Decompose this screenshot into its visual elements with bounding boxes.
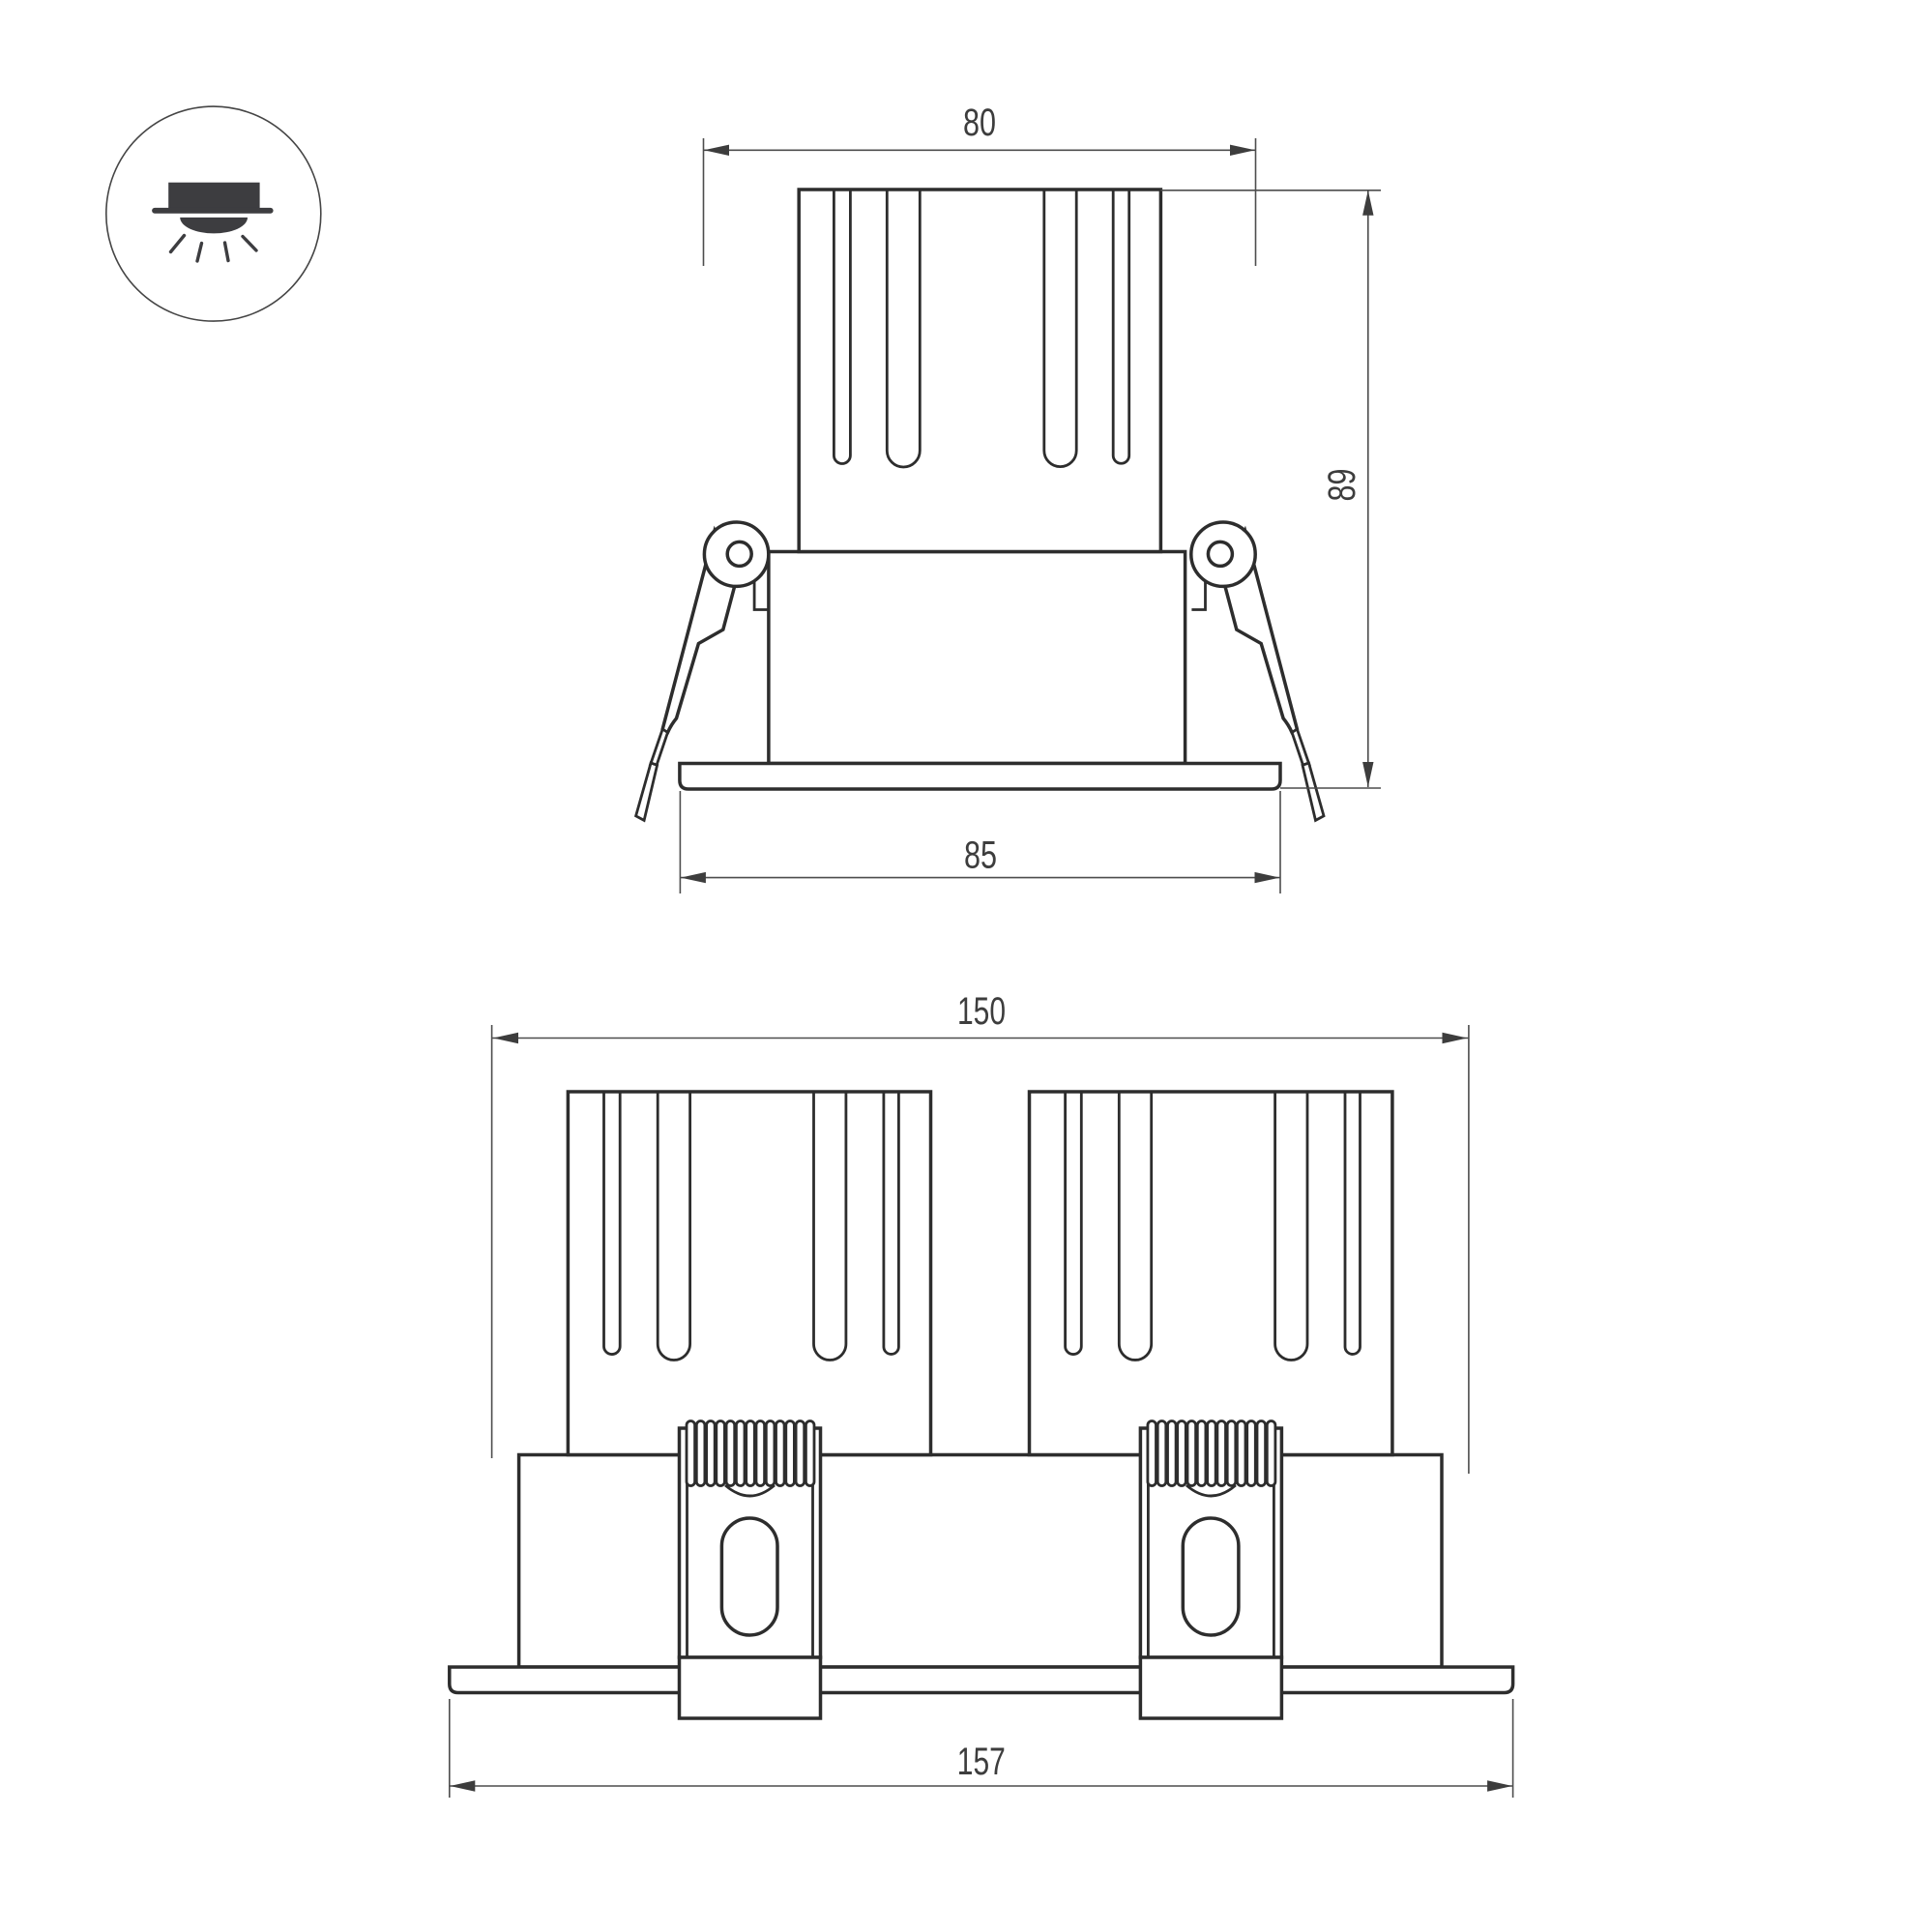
svg-text:89: 89 [1321,469,1363,502]
svg-text:85: 85 [964,834,997,877]
svg-text:80: 80 [963,102,996,144]
svg-text:157: 157 [957,1741,1006,1783]
svg-text:150: 150 [957,990,1006,1033]
